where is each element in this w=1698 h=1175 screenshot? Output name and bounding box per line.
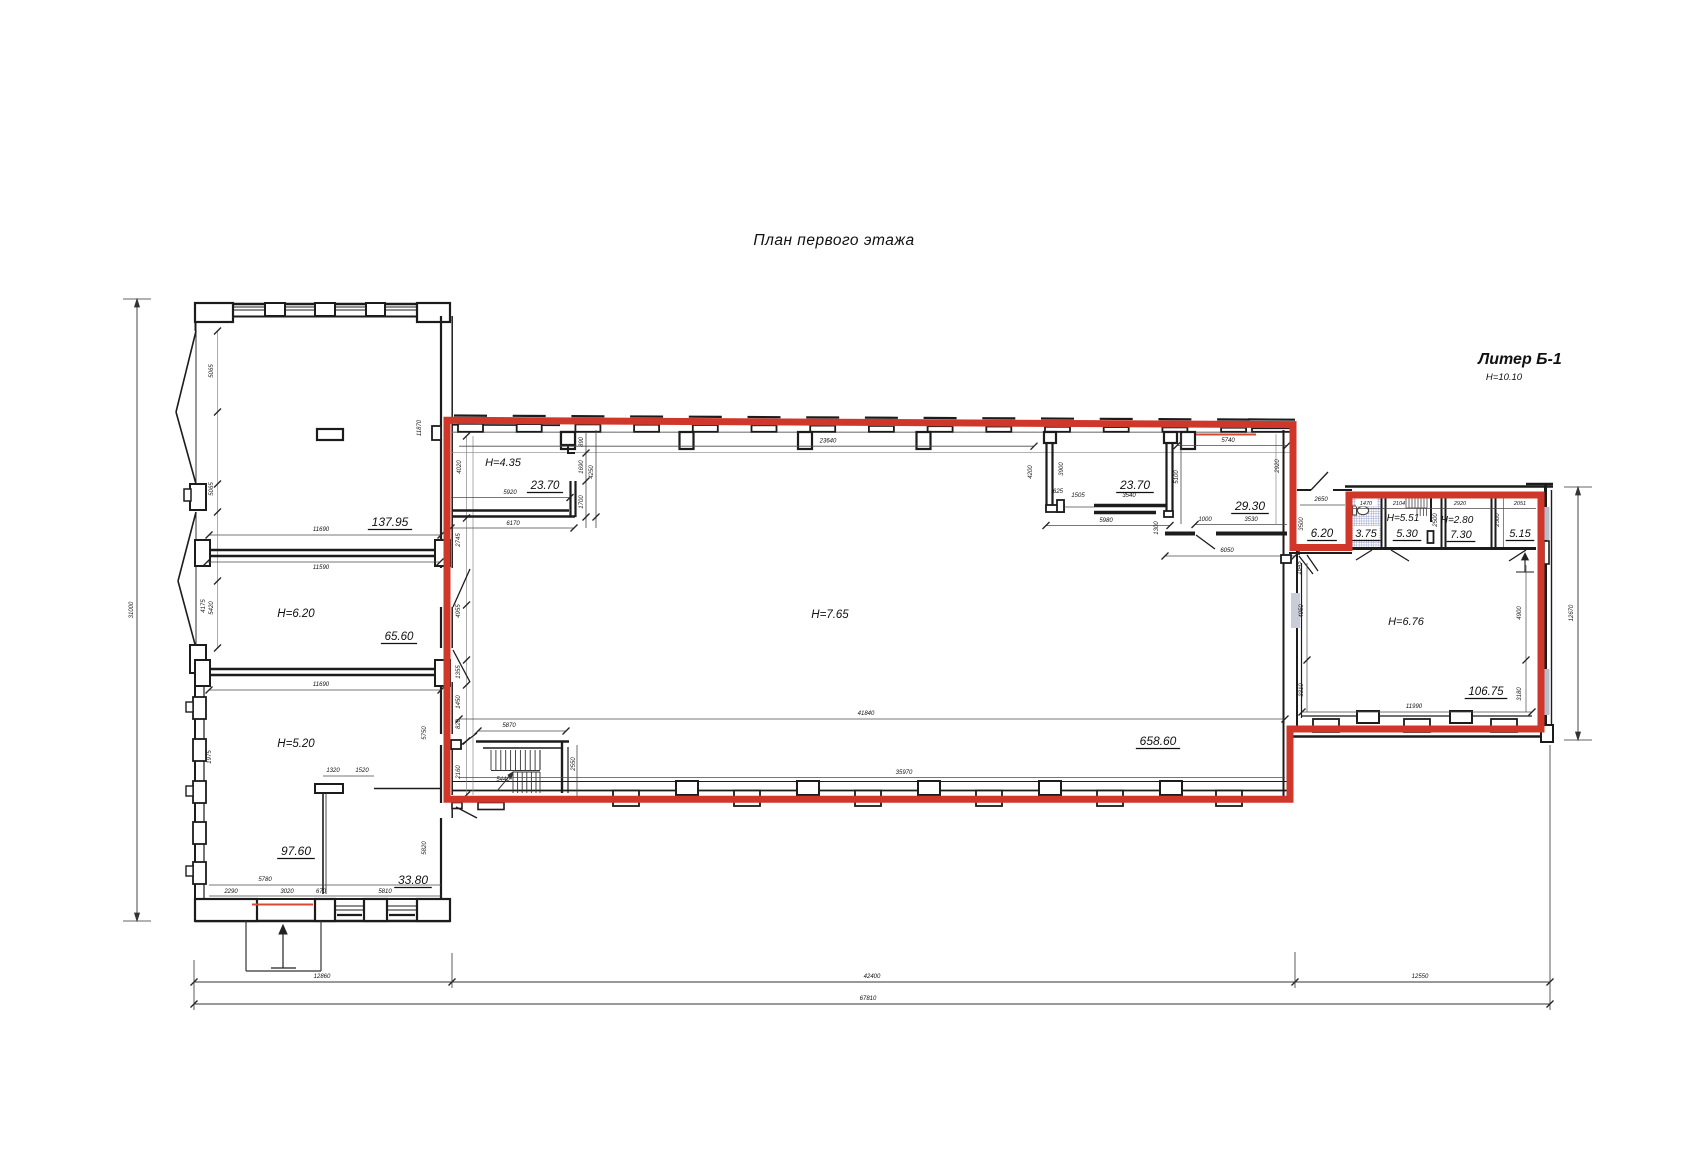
svg-text:658.60: 658.60: [1140, 734, 1177, 748]
svg-text:1690: 1690: [579, 460, 585, 474]
svg-text:5.30: 5.30: [1396, 528, 1418, 540]
svg-text:6050: 6050: [1220, 548, 1234, 554]
svg-text:3500: 3500: [1299, 517, 1305, 531]
svg-text:3540: 3540: [1122, 493, 1136, 499]
svg-text:3180: 3180: [1517, 687, 1523, 701]
svg-text:12670: 12670: [1569, 604, 1575, 621]
svg-text:1000: 1000: [1198, 517, 1212, 523]
svg-text:625: 625: [1053, 489, 1064, 495]
svg-text:5810: 5810: [378, 889, 392, 895]
svg-text:5740: 5740: [1221, 438, 1235, 444]
svg-text:2920: 2920: [1275, 459, 1281, 474]
svg-text:3.75: 3.75: [1355, 528, 1377, 540]
svg-text:2051: 2051: [1513, 501, 1526, 507]
svg-text:5065: 5065: [209, 482, 215, 496]
svg-text:5750: 5750: [422, 726, 428, 740]
svg-text:11690: 11690: [313, 527, 330, 533]
svg-text:4900: 4900: [1517, 606, 1523, 620]
svg-text:2500: 2500: [1433, 513, 1439, 528]
svg-text:3310: 3310: [1299, 683, 1305, 697]
svg-text:11690: 11690: [313, 682, 330, 688]
svg-text:2920: 2920: [1453, 501, 1467, 507]
svg-text:5980: 5980: [1099, 518, 1113, 524]
svg-text:11990: 11990: [1406, 704, 1423, 710]
svg-text:3530: 3530: [1244, 517, 1258, 523]
svg-text:1520: 1520: [355, 768, 369, 774]
svg-text:1975: 1975: [207, 750, 213, 764]
svg-text:41840: 41840: [858, 711, 875, 717]
svg-text:42400: 42400: [864, 974, 881, 980]
svg-text:5100: 5100: [1174, 470, 1180, 484]
svg-text:4950: 4950: [1299, 604, 1305, 618]
svg-text:5780: 5780: [258, 877, 272, 883]
svg-text:6.20: 6.20: [1311, 528, 1334, 540]
svg-text:2550: 2550: [571, 757, 577, 772]
svg-text:106.75: 106.75: [1468, 686, 1504, 698]
svg-text:23.70: 23.70: [1119, 478, 1150, 492]
svg-text:План первого этажа: План первого этажа: [753, 232, 914, 249]
svg-text:65.60: 65.60: [385, 631, 414, 643]
svg-text:1470: 1470: [1360, 501, 1373, 507]
svg-text:4250: 4250: [589, 465, 595, 479]
svg-text:11870: 11870: [417, 419, 423, 436]
svg-text:7.30: 7.30: [1450, 529, 1472, 541]
svg-text:Литер Б-1: Литер Б-1: [1477, 351, 1562, 368]
svg-text:137.95: 137.95: [372, 515, 409, 529]
svg-text:5820: 5820: [422, 841, 428, 855]
svg-text:820: 820: [456, 718, 462, 729]
svg-text:3900: 3900: [1059, 462, 1065, 476]
svg-text:5.15: 5.15: [1509, 528, 1531, 540]
svg-text:67810: 67810: [860, 996, 877, 1002]
svg-text:H=7.65: H=7.65: [811, 609, 849, 621]
svg-text:12550: 12550: [1412, 974, 1429, 980]
svg-text:12860: 12860: [314, 974, 331, 980]
svg-text:670: 670: [316, 889, 327, 895]
svg-text:2745: 2745: [456, 533, 462, 548]
svg-text:H=2.80: H=2.80: [1441, 515, 1474, 526]
svg-text:H=10.10: H=10.10: [1486, 372, 1523, 383]
svg-text:1355: 1355: [456, 665, 462, 679]
svg-text:35970: 35970: [896, 770, 913, 776]
svg-text:5440: 5440: [496, 777, 510, 783]
svg-text:2290: 2290: [223, 889, 238, 895]
svg-text:3020: 3020: [280, 889, 294, 895]
svg-text:23.70: 23.70: [530, 480, 560, 492]
svg-text:2104: 2104: [1392, 501, 1405, 507]
svg-text:H=6.20: H=6.20: [277, 608, 315, 620]
svg-text:H=5.51: H=5.51: [1387, 513, 1420, 524]
svg-text:1700: 1700: [579, 495, 585, 509]
svg-text:29.30: 29.30: [1234, 499, 1265, 513]
svg-text:890: 890: [579, 436, 585, 447]
svg-text:6170: 6170: [506, 521, 520, 527]
svg-text:4020: 4020: [457, 460, 463, 474]
svg-text:4955: 4955: [456, 604, 462, 618]
svg-text:H=4.35: H=4.35: [485, 457, 522, 469]
svg-text:5420: 5420: [209, 601, 215, 615]
svg-text:2500: 2500: [1495, 513, 1501, 528]
svg-text:4175: 4175: [201, 599, 207, 613]
svg-text:1300: 1300: [1154, 521, 1160, 535]
svg-text:2650: 2650: [1313, 497, 1328, 503]
svg-text:1450: 1450: [456, 695, 462, 709]
svg-text:31000: 31000: [129, 601, 135, 618]
svg-text:4200: 4200: [1028, 465, 1034, 479]
svg-text:11590: 11590: [313, 565, 330, 571]
svg-text:1505: 1505: [1071, 493, 1085, 499]
svg-text:1320: 1320: [326, 768, 340, 774]
svg-text:5065: 5065: [209, 364, 215, 378]
svg-text:H=5.20: H=5.20: [277, 738, 315, 750]
svg-text:97.60: 97.60: [281, 844, 311, 858]
svg-text:H=6.76: H=6.76: [1388, 616, 1425, 628]
svg-text:5870: 5870: [502, 723, 516, 729]
svg-text:23640: 23640: [819, 439, 837, 445]
svg-text:5920: 5920: [503, 490, 517, 496]
